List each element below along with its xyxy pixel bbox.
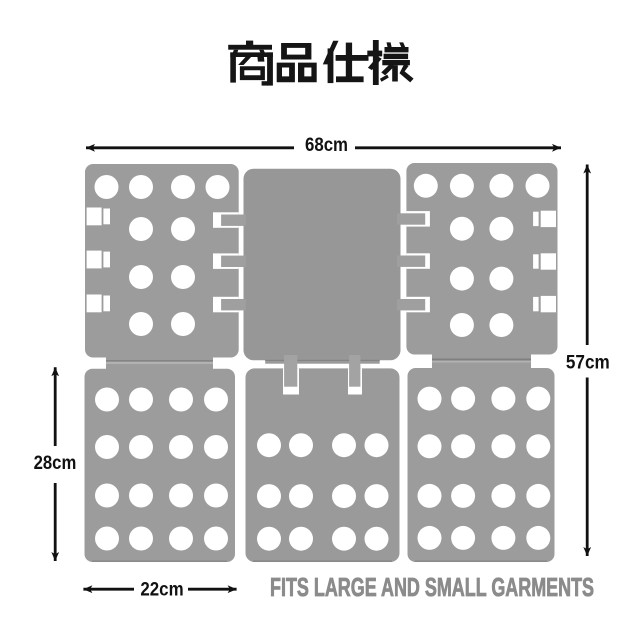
svg-text:22cm: 22cm	[140, 579, 183, 601]
svg-text:68cm: 68cm	[305, 134, 348, 156]
svg-text:28cm: 28cm	[34, 452, 77, 474]
svg-text:57cm: 57cm	[566, 351, 610, 373]
svg-text:FITS LARGE AND SMALL GARMENTS: FITS LARGE AND SMALL GARMENTS	[270, 572, 594, 602]
